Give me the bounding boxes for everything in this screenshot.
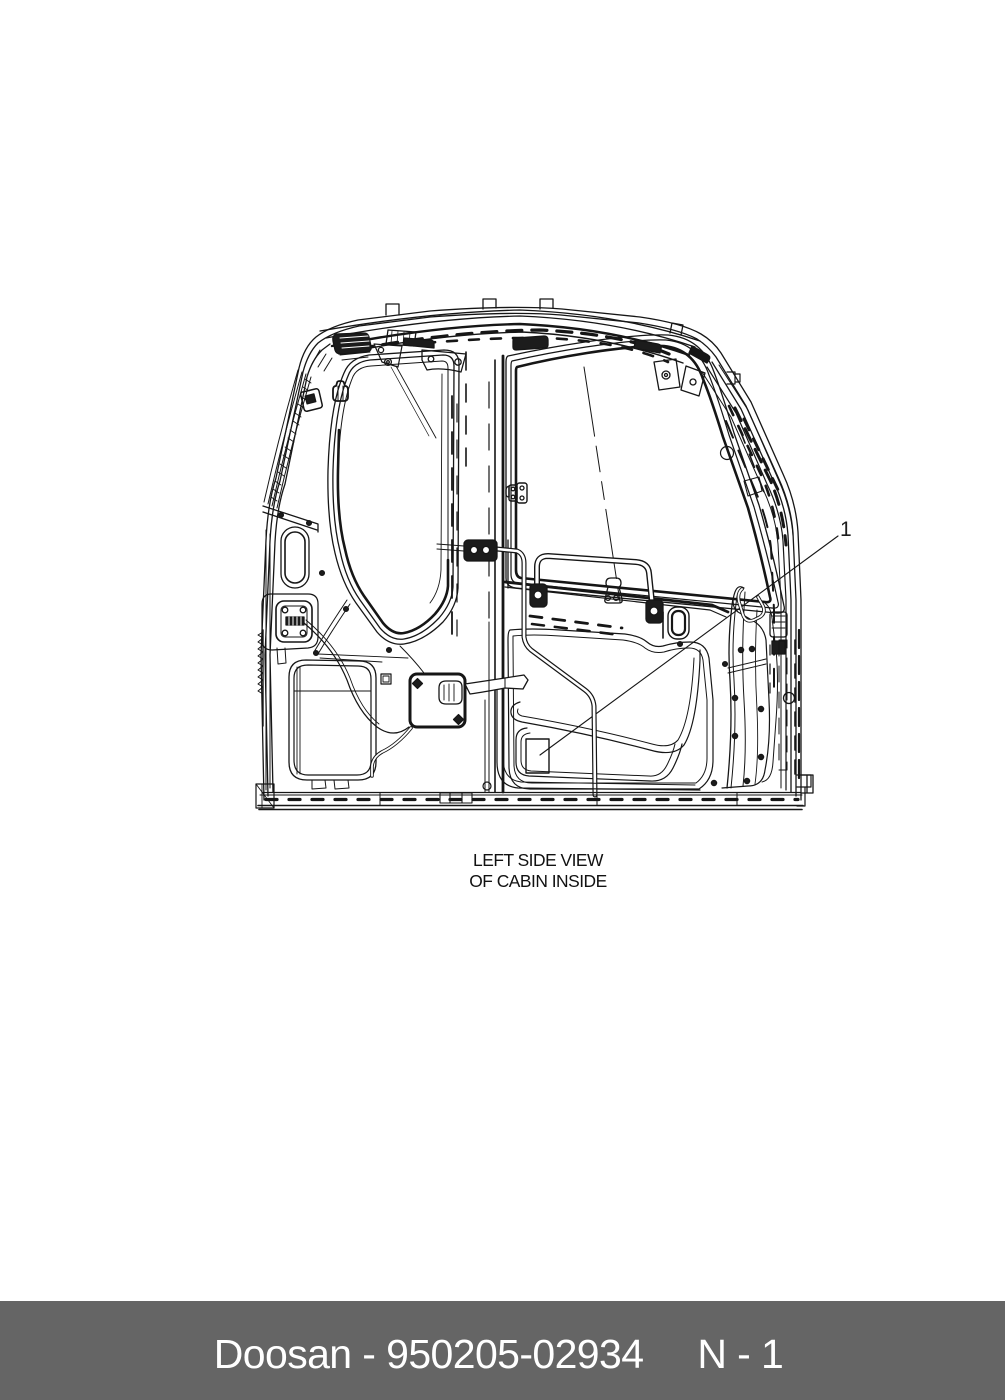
svg-text:1: 1 [840, 518, 852, 541]
